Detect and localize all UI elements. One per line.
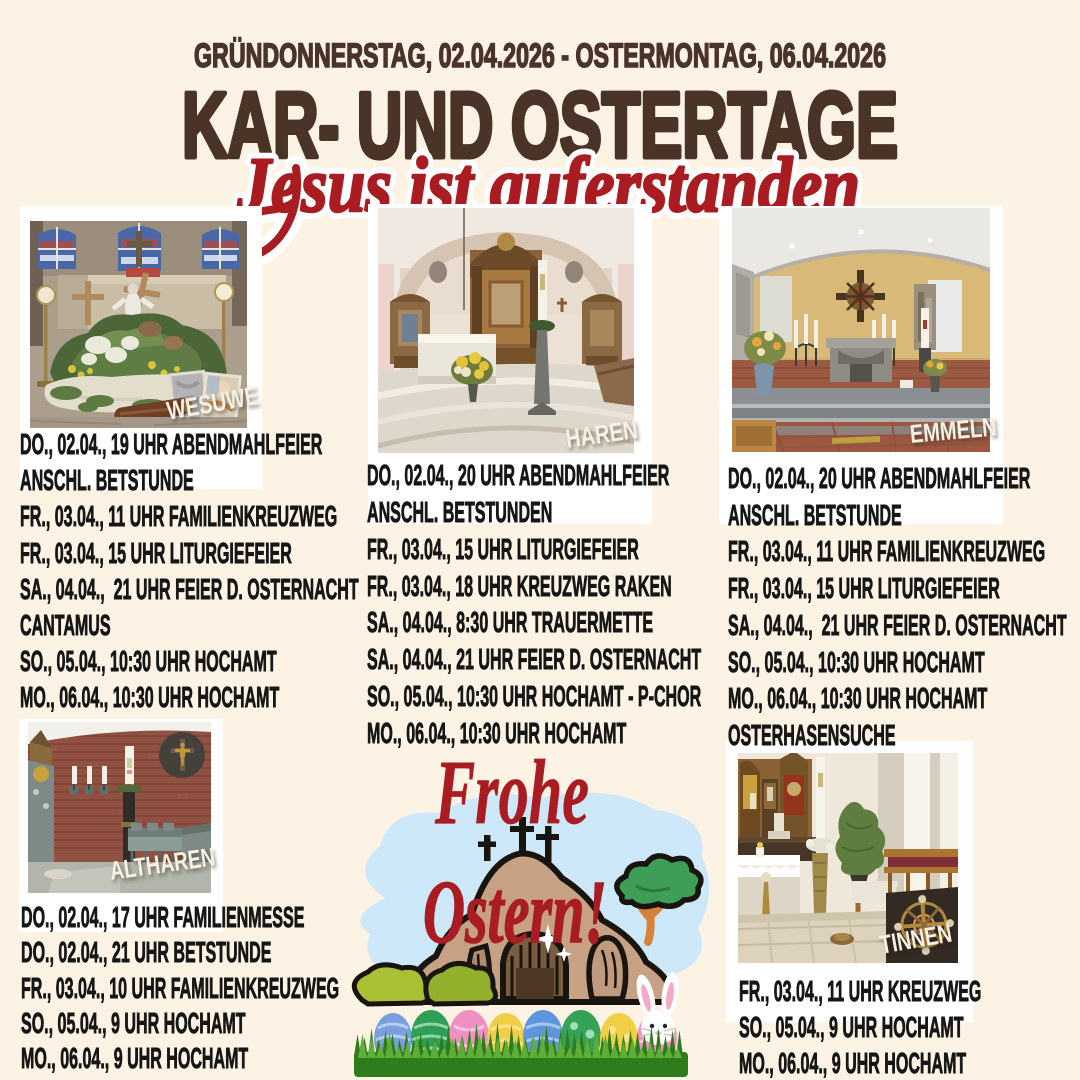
svg-text:Ostern!: Ostern! xyxy=(423,863,607,962)
svg-text:Frohe: Frohe xyxy=(434,741,589,843)
